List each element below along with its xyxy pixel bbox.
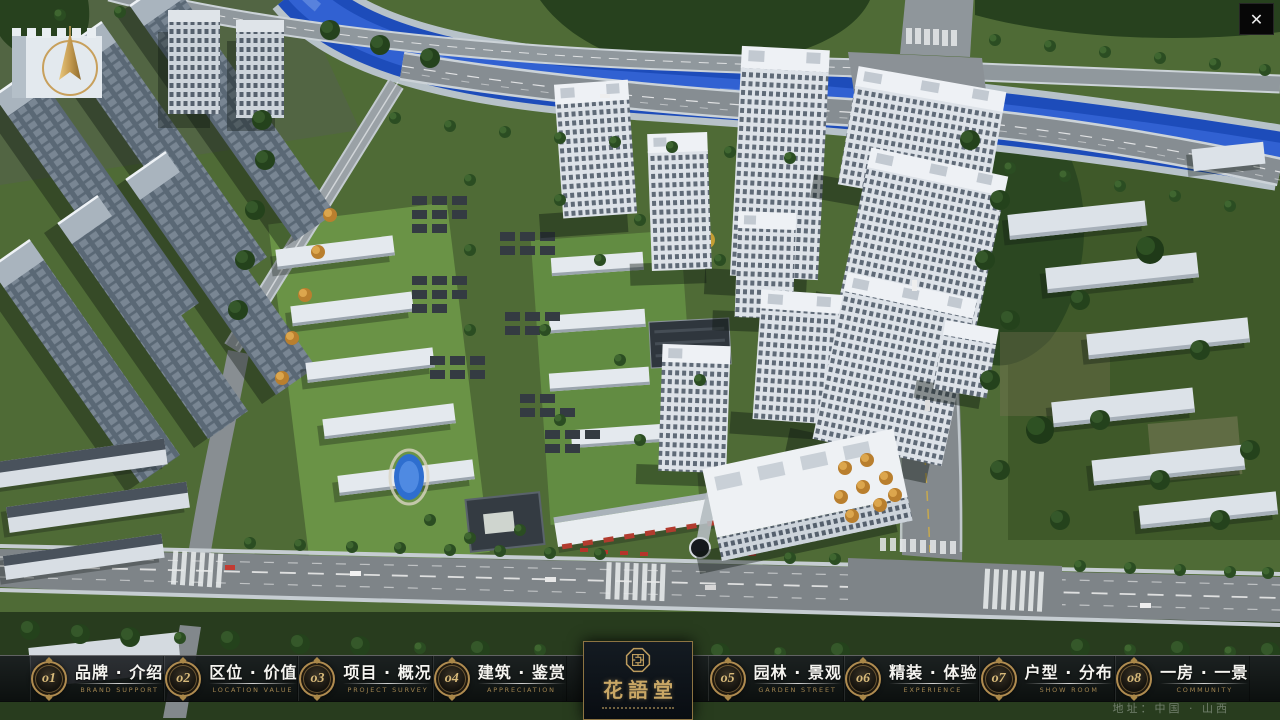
masterplan-render — [0, 0, 1280, 720]
navbar-right-pad — [1250, 656, 1280, 701]
nav-underline — [889, 683, 977, 684]
nav-item-interior-label: 精装 · 体验 — [889, 664, 977, 682]
nav-underline — [1025, 683, 1113, 684]
address-text: 地址：中国 · 山西 — [1113, 700, 1231, 716]
nav-item-landscape-sublabel: GARDEN STREET — [759, 686, 837, 693]
nav-item-project-label: 项目 · 概况 — [343, 664, 431, 682]
nav-underline — [478, 683, 566, 684]
nav-item-location-label: 区位 · 价值 — [209, 664, 297, 682]
compass-icon — [34, 26, 106, 104]
nav-item-landscape[interactable]: o5 园林 · 景观 GARDEN STREET — [708, 656, 844, 701]
nav-item-brand-label: 品牌 · 介绍 — [75, 664, 163, 682]
nav-item-floorplan-sublabel: SHOW ROOM — [1039, 686, 1098, 693]
nav-item-landscape-label: 园林 · 景观 — [754, 664, 842, 682]
nav-item-interior[interactable]: o6 精装 · 体验 EXPERIENCE — [844, 656, 980, 701]
nav-item-architecture-sublabel: APPRECIATION — [487, 686, 556, 693]
nav-item-room-view[interactable]: o8 一房 · 一景 COMMUNITY — [1115, 656, 1251, 701]
nav-item-interior-sublabel: EXPERIENCE — [904, 686, 963, 693]
nav-item-floorplan-label: 户型 · 分布 — [1025, 664, 1113, 682]
seal-icon — [625, 647, 651, 673]
nav-item-architecture-badge: o4 — [434, 661, 470, 697]
nav-underline — [209, 683, 297, 684]
nav-underline — [75, 683, 163, 684]
nav-item-brand-sublabel: BRAND SUPPORT — [80, 686, 158, 693]
nav-item-interior-badge: o6 — [845, 661, 881, 697]
nav-item-location-badge: o2 — [165, 661, 201, 697]
navbar-left-pad — [0, 656, 30, 701]
nav-item-brand-badge: o1 — [31, 661, 67, 697]
nav-item-room-view-badge: o8 — [1116, 661, 1152, 697]
nav-item-brand[interactable]: o1 品牌 · 介绍 BRAND SUPPORT — [30, 656, 164, 701]
nav-item-floorplan[interactable]: o7 户型 · 分布 SHOW ROOM — [979, 656, 1115, 701]
nav-item-project[interactable]: o3 项目 · 概况 PROJECT SURVEY — [298, 656, 432, 701]
nav-underline — [343, 683, 431, 684]
nav-item-location-sublabel: LOCATION VALUE — [213, 686, 294, 693]
nav-group-left: o1 品牌 · 介绍 BRAND SUPPORT o2 区位 · 价值 LOCA… — [30, 656, 558, 701]
nav-item-landscape-badge: o5 — [710, 661, 746, 697]
nav-item-room-view-label: 一房 · 一景 — [1160, 664, 1248, 682]
logo-panel[interactable]: 花語堂 — [583, 641, 693, 720]
sales-presentation-window: ✕ o1 品牌 · 介绍 BRAND SUPPORT o2 区位 · 价值 LO… — [0, 0, 1280, 720]
close-button[interactable]: ✕ — [1239, 3, 1274, 35]
nav-underline — [1160, 683, 1248, 684]
nav-item-project-badge: o3 — [299, 661, 335, 697]
nav-item-architecture-label: 建筑 · 鉴赏 — [478, 664, 566, 682]
nav-underline — [754, 683, 842, 684]
logo-subtitle-rule — [602, 707, 674, 709]
logo-title: 花語堂 — [603, 674, 678, 703]
nav-item-floorplan-badge: o7 — [981, 661, 1017, 697]
nav-item-room-view-sublabel: COMMUNITY — [1176, 686, 1233, 693]
nav-item-project-sublabel: PROJECT SURVEY — [347, 686, 428, 693]
nav-group-right: o5 园林 · 景观 GARDEN STREET o6 精装 · 体验 EXPE… — [708, 656, 1250, 701]
nav-item-location[interactable]: o2 区位 · 价值 LOCATION VALUE — [164, 656, 298, 701]
nav-item-architecture[interactable]: o4 建筑 · 鉴赏 APPRECIATION — [433, 656, 567, 701]
close-icon: ✕ — [1250, 10, 1263, 29]
